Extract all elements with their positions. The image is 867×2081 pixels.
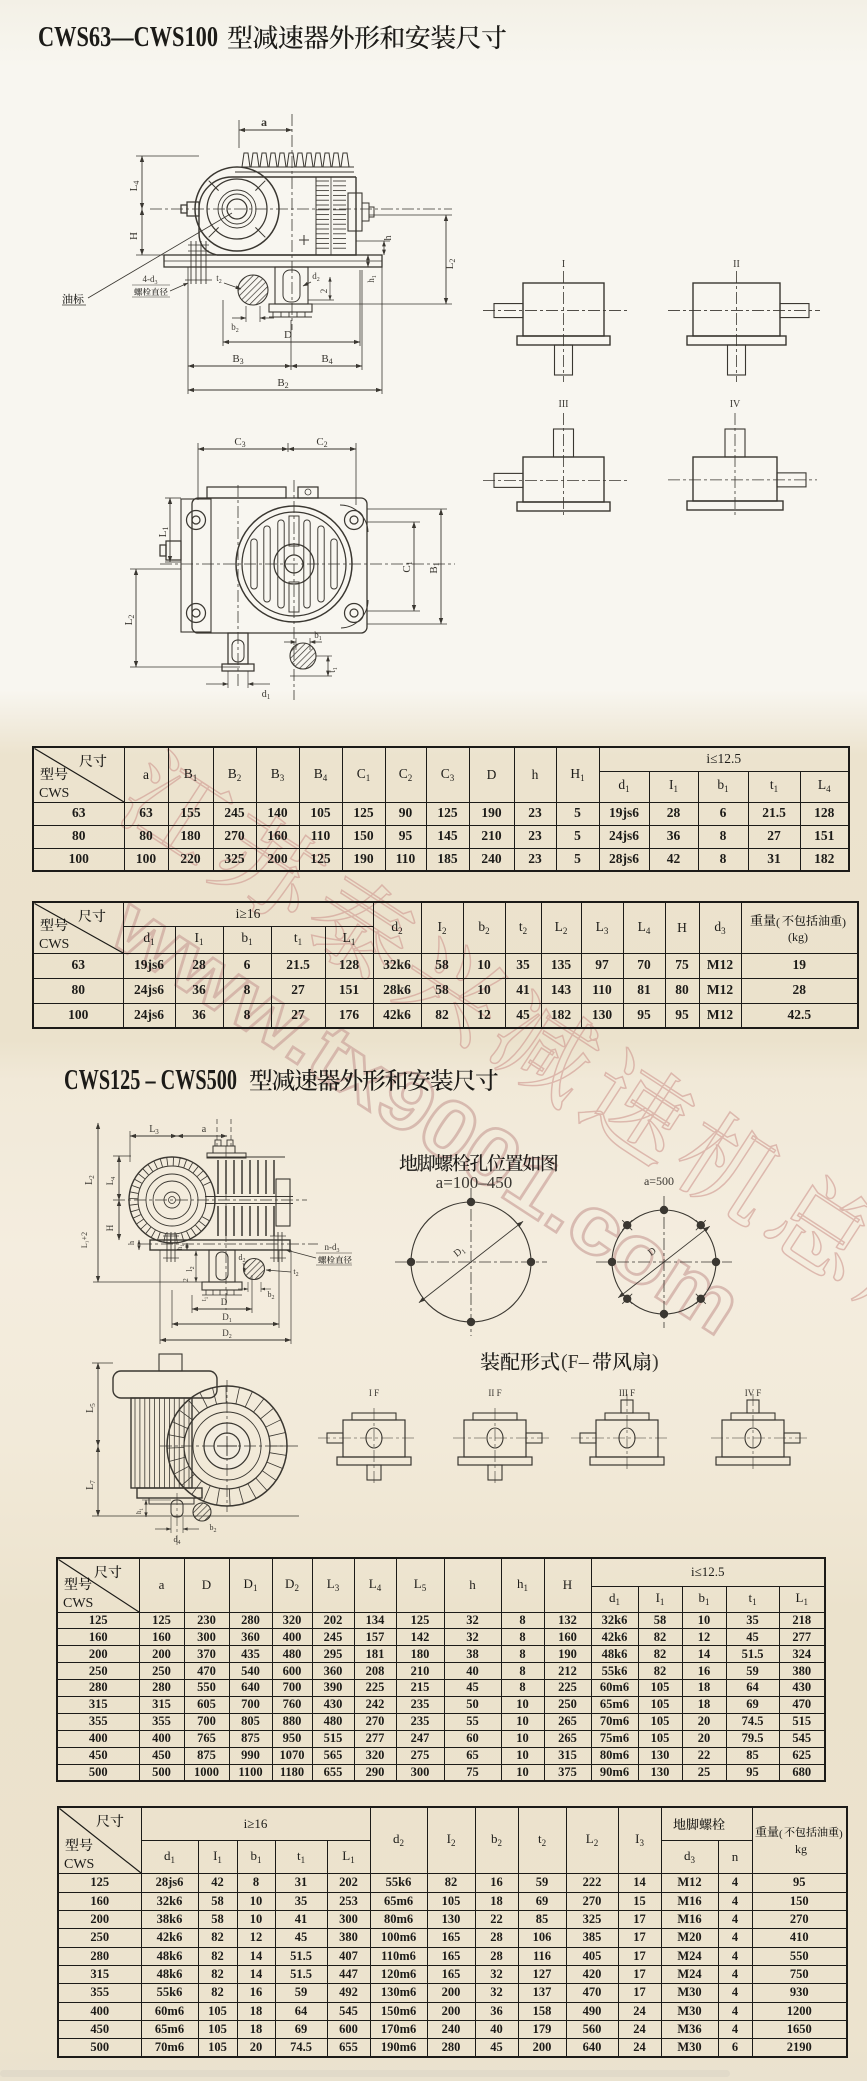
svg-text:CWS: CWS <box>63 1596 93 1611</box>
svg-text:L4: L4 <box>105 1177 117 1186</box>
svg-text:H: H <box>105 1224 115 1231</box>
svg-text:h: h <box>383 236 394 241</box>
svg-text:a=500: a=500 <box>644 1174 674 1188</box>
svg-text:b1: b1 <box>314 630 322 642</box>
svg-text:L₁+2: L₁+2 <box>80 1232 89 1248</box>
svg-text:D: D <box>221 1297 228 1307</box>
svg-text:): ) <box>652 1351 659 1373</box>
svg-text:CWS125 – CWS500: CWS125 – CWS500 <box>64 1065 237 1096</box>
svg-text:D2: D2 <box>222 1328 232 1340</box>
svg-text:CWS: CWS <box>39 786 69 801</box>
svg-text:): ) <box>842 915 846 929</box>
svg-text:D1: D1 <box>222 1312 232 1324</box>
svg-text:III: III <box>559 399 569 410</box>
svg-text:L2: L2 <box>84 1175 96 1185</box>
svg-text:B4: B4 <box>321 353 332 366</box>
svg-text:2: 2 <box>182 1278 190 1282</box>
svg-text:d1: d1 <box>262 689 271 701</box>
svg-text:d4: d4 <box>174 1535 181 1546</box>
svg-text:II: II <box>733 259 740 270</box>
svg-text:h: h <box>127 1241 136 1245</box>
svg-text:C2: C2 <box>316 436 327 449</box>
svg-text:kg: kg <box>795 1842 807 1856</box>
svg-text:CWS: CWS <box>64 1857 94 1872</box>
svg-text:h1: h1 <box>176 1244 186 1251</box>
svg-text:): ) <box>839 1828 843 1840</box>
svg-text:I F: I F <box>369 1388 379 1398</box>
svg-text:L4: L4 <box>128 181 141 192</box>
svg-text:C1: C1 <box>401 561 414 572</box>
svg-text:t1: t1 <box>200 1296 210 1301</box>
svg-text:d2: d2 <box>312 271 320 283</box>
svg-text:B3: B3 <box>232 353 243 366</box>
svg-text:L1: L1 <box>157 527 170 538</box>
svg-text:B2: B2 <box>277 377 288 390</box>
svg-text:(kg): (kg) <box>788 930 808 944</box>
svg-text:d2: d2 <box>239 1253 246 1264</box>
svg-text:CWS: CWS <box>39 937 69 952</box>
svg-text:t2: t2 <box>216 273 222 285</box>
svg-text:n-d3: n-d3 <box>325 1242 340 1254</box>
svg-text:L2: L2 <box>123 615 136 626</box>
svg-text:l2: l2 <box>185 1266 196 1271</box>
svg-text:(: ( <box>779 1828 783 1840</box>
svg-text:t2: t2 <box>293 1267 298 1278</box>
svg-text:D1: D1 <box>452 1244 468 1260</box>
svg-text:CWS63—CWS100: CWS63—CWS100 <box>38 22 218 53</box>
svg-text:a: a <box>261 115 267 129</box>
svg-text:(F–: (F– <box>561 1351 590 1373</box>
svg-text:I: I <box>562 259 565 270</box>
svg-text:h1: h1 <box>135 1508 145 1515</box>
svg-text:b2: b2 <box>268 1290 275 1301</box>
svg-text:t1: t1 <box>327 667 339 673</box>
svg-text:4-d3: 4-d3 <box>143 274 158 286</box>
svg-text:L7: L7 <box>85 1480 97 1490</box>
svg-text:H: H <box>128 232 140 240</box>
svg-text:IV: IV <box>730 399 741 410</box>
svg-text:b2: b2 <box>210 1523 217 1534</box>
svg-text:b2: b2 <box>231 322 239 334</box>
svg-text:L5: L5 <box>85 1403 97 1413</box>
svg-text:(: ( <box>776 915 780 929</box>
svg-text:II F: II F <box>488 1388 501 1398</box>
svg-text:L3: L3 <box>149 1124 159 1136</box>
svg-text:C3: C3 <box>234 436 245 449</box>
svg-text:2: 2 <box>319 289 329 294</box>
svg-text:a: a <box>202 1124 207 1135</box>
svg-text:a=100–450: a=100–450 <box>436 1173 513 1192</box>
svg-text:h1: h1 <box>366 275 378 283</box>
